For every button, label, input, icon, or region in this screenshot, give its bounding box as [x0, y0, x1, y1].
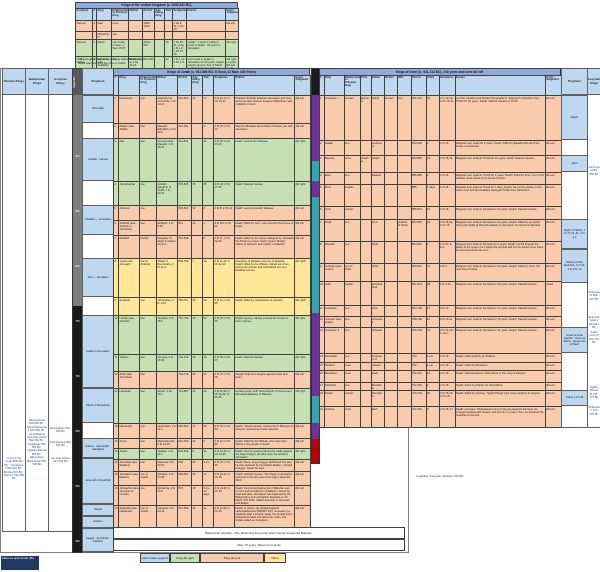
cell-king: Jehoash (aka Joash) — [324, 317, 344, 328]
cell-judgment: did evil — [545, 354, 561, 363]
cell-father: Ahijah — [371, 156, 384, 173]
cell-scriptures: 1 Ki 16 — [439, 173, 455, 185]
cell-judgment — [226, 32, 239, 40]
cell-judgment: did evil — [295, 96, 311, 124]
cell-years: 24 — [426, 156, 439, 173]
cell-rel: son — [140, 355, 157, 372]
cell-events: Death: shot by archers during the battle… — [235, 449, 295, 460]
babylonian-kings-header: Babylonian Kings — [26, 69, 48, 95]
cell-scriptures: 2 Ki 11; 2 Ch 22-23 — [214, 236, 235, 259]
cell-wife — [397, 173, 411, 185]
column-header-7: Period — [411, 76, 426, 96]
cell-scriptures: 2 Ki 8-9; 2 Ch 22 — [214, 221, 235, 236]
cell-scriptures: 2 Ki 23; 2 Ch 36 — [214, 460, 235, 472]
cell-wife — [397, 207, 411, 220]
cell-king: Josiah — [119, 449, 140, 460]
cell-mother: Azubah daughter of Shilhi, 1 Ki 22:42 — [157, 182, 178, 206]
cell-period: 852-841 — [411, 264, 426, 282]
cell-period: 885 — [411, 185, 426, 207]
cell-years: 22 — [426, 96, 439, 141]
cell-period: 732-716 — [178, 372, 192, 389]
cell-mother: Abijah, 2 Ch 29:1 — [157, 389, 178, 424]
timeline-tick: 800 — [73, 265, 82, 268]
cell-rel: captain — [344, 282, 360, 306]
judah-prophets-column: Prophets ShemaiahAzariah · HananiObadiah… — [82, 68, 114, 553]
cell-mother — [157, 206, 178, 221]
cell-mother: Daughter of Ahab & relative of Omri — [157, 236, 178, 259]
cell-mother — [384, 354, 397, 363]
cell-events: Death: killed by Jehu, who usurped the t… — [235, 221, 295, 236]
cell-father: Jeroboam — [371, 141, 384, 156]
cell-events: Death: Killed by Pekah, his chief office… — [455, 383, 545, 391]
cell-tribe — [360, 185, 371, 207]
timeline-segment — [73, 306, 82, 552]
king-row-elah: 4ElahsonBaasha886-88521 Ki 16Reigned ove… — [319, 173, 561, 185]
cell-father: Jehoash — [371, 328, 384, 354]
cell-king: Hezekiah — [119, 389, 140, 424]
cell-tribe — [360, 383, 371, 391]
timeline-segment — [73, 95, 82, 306]
cell-king: Jehu — [324, 282, 344, 306]
cell-king: Ahaz (aka Jehoahaz) — [119, 372, 140, 389]
cell-king: Jeroboam II — [324, 328, 344, 354]
cell-years: 6 mo — [426, 354, 439, 363]
cell-age: 25 — [192, 389, 203, 424]
cell-king: Hoshea — [324, 407, 344, 428]
cell-events: Reigned over Israel in Samaria for 22 ye… — [455, 220, 545, 242]
cell-events: Death: Killed by Menahem. — [455, 363, 545, 371]
cell-mother — [384, 328, 397, 354]
cell-scriptures: 2 Ki 15 — [439, 354, 455, 363]
cell-scriptures: 2 Ki 3 — [439, 264, 455, 282]
cell-wife — [397, 354, 411, 363]
prophet-cell: Jeremiah of Anathoth — [83, 458, 113, 504]
cell-scriptures: 2 Ki 8; 2 Ch 21 — [214, 206, 235, 221]
cell-judgment: did evil — [545, 383, 561, 391]
cell-mother — [384, 282, 397, 306]
assyrian-kings-left-column: Assyrian Kings Esarhaddon 681-669 BCAshu… — [48, 68, 73, 532]
king-row-hezekiah: 13HezekiahsonAbijah, 2 Ch 29:1716-687252… — [114, 389, 311, 424]
column-header-5: Age being King — [192, 76, 203, 96]
cell-period: 687-642 — [178, 424, 192, 439]
prophet-cell: Elijah of Tishbe, 1 Ki 17-19, 21; 2 Ki 1… — [562, 219, 587, 249]
king-row-josiah: 16JosiahsonJedidah, 2 Ki 22:1640-6098312… — [114, 449, 311, 460]
israel-prophets-column: Prophets AhijahJehuElijah of Tishbe, 1 K… — [561, 68, 588, 428]
cell-rel: none — [112, 21, 129, 32]
cell-king: Athaliah — [119, 236, 140, 259]
cell-period: 640-609 — [178, 449, 192, 460]
cell-father: Menahem — [371, 383, 384, 391]
cell-scriptures: 2 Ki 9-10 — [439, 282, 455, 306]
cell-judgment: did evil — [295, 236, 311, 259]
king-row-jehu: 10JehucaptainJehoshaphat841-814282 Ki 9-… — [319, 282, 561, 306]
prophet-cell: Oded, 2 Ch 28 — [562, 390, 587, 406]
foreign-king-entry: Nabopolassar 626-605 BC · Nebuchadnezzar… — [27, 419, 48, 466]
cell-judgment: did evil — [545, 141, 561, 156]
cell-king: Jehoahaz — [324, 306, 344, 317]
cell-years: 6 — [203, 236, 214, 259]
cell-judgment: did evil — [295, 221, 311, 236]
column-header-2: Relationship to Previous King — [344, 76, 360, 96]
cell-events: Warred (Micaiah) descendant of David; wa… — [235, 124, 295, 139]
king-row-pekah: 18PekahcaptainRemaliah740-732202 Ki 15-1… — [319, 391, 561, 407]
foreign-king-entry: Ashurbanipal 669-631 BC — [50, 441, 72, 448]
cell-age — [192, 236, 203, 259]
prophet-cell: Shemaiah — [83, 95, 113, 123]
cell-king: Amon — [119, 439, 140, 449]
cell-period: 886-885 — [411, 173, 426, 185]
cell-age — [192, 124, 203, 139]
king-row-ahaziah: 8AhaziahsonAhab853-85221 Ki 22; 2 Ki 1Re… — [319, 242, 561, 264]
cell-period: 814-798 — [411, 306, 426, 317]
cell-period: 910-909 — [411, 141, 426, 156]
cell-scriptures: 2 Ki 13-14 — [439, 317, 455, 328]
cell-mother — [384, 264, 397, 282]
cell-prophet: Samuel — [76, 21, 93, 32]
cell-tribe — [360, 391, 371, 407]
king-row-jotham: 11JothamsonJerusha, 2 Ki 15:33740-732251… — [114, 355, 311, 372]
king-row-saul: Samuel1Saulnone1050-10101 Sa 9-31; 1 Ch … — [76, 21, 239, 32]
cell-period: 911-870 — [178, 139, 192, 182]
cell-wife: Jezebel of Sidon — [397, 220, 411, 242]
cell-tribe — [360, 207, 371, 220]
prophet-cell: Obadiah — Jerusalem — [83, 205, 113, 235]
cell-mother: Jehoaddan, 2 Ki 14:2 — [157, 298, 178, 316]
cell-mother — [129, 21, 143, 32]
cell-period: 835-796 — [178, 259, 192, 298]
legend-king-did-right: King did right — [170, 553, 200, 563]
cell-rel: son — [140, 124, 157, 139]
cell-mother — [384, 391, 397, 407]
column-header-5: Period — [143, 9, 155, 21]
cell-king: Saul — [97, 21, 112, 32]
king-row-uzziah: 10Uzziah (aka Azariah)sonJecoliah, 2 Ki … — [114, 316, 311, 355]
note-line-2: David was king over the tribe of Judah. — [78, 62, 238, 66]
cell-rel: son — [344, 141, 360, 156]
cell-mother: Grandmother: Maacah, 1 Ki 15:10 — [157, 139, 178, 182]
cell-events: Reigned over Israel for 2 years. Death: … — [455, 141, 545, 156]
cell-father: Elah — [371, 407, 384, 428]
cell-events — [187, 32, 226, 40]
cell-rel: son — [140, 460, 157, 472]
cell-scriptures: 2 Ki 23-24; 2 Ch 36 — [214, 472, 235, 486]
prophet-cell: Ahijah — [562, 95, 587, 140]
cell-tribe — [360, 317, 371, 328]
cell-king: Ahab — [324, 220, 344, 242]
cell-years: 40 — [165, 40, 173, 57]
column-header-10: Events — [455, 76, 545, 96]
king-row-pekahiah: 17PekahiahsonMenahem742-74022 Ki 15Death… — [319, 383, 561, 391]
foreign-king-entry: Shamshi-Adad V 824-811 BC — [589, 316, 600, 330]
cell-king: Jotham — [119, 355, 140, 372]
israel-prophets-header: Prophets — [562, 69, 587, 95]
cell-wife — [397, 141, 411, 156]
cell-mother — [384, 242, 397, 264]
cell-wife — [397, 407, 411, 428]
cell-events: Death: Natural Causes. The Siege of Jeru… — [235, 472, 295, 486]
column-header-6: Age being King — [155, 9, 165, 21]
cell-period: 1050-1010 — [143, 21, 155, 32]
prophet-cell: Micah of Moresheth — [83, 388, 113, 423]
column-header-2: King — [97, 9, 112, 21]
cell-rel: son — [140, 439, 157, 449]
king-row-jehoahaz: 17Jehoahaz (aka Shallum)sonHamutal, 2 Ki… — [114, 460, 311, 472]
cell-events: Death: killed by his officials, who were… — [235, 439, 295, 449]
cell-age: 12 — [192, 424, 203, 439]
cell-period: 752 — [411, 363, 426, 371]
cell-scriptures: 2 Ki 11-12; 2 Ch 22-24 — [214, 259, 235, 298]
cell-king: Ahaziah — [324, 242, 344, 264]
cell-tribe — [360, 354, 371, 363]
cell-period: 609 — [178, 460, 192, 472]
column-header-6: Wife — [397, 76, 411, 96]
cell-years: 25 — [203, 182, 214, 206]
cell-scriptures: 2 Ki 13 — [439, 306, 455, 317]
cell-years: 3 — [203, 124, 214, 139]
babylonian-captivity-text: Babylonian captivity ~70y; Returning fro… — [205, 531, 312, 535]
cell-events: Sought help from Assyria against Israel … — [235, 372, 295, 389]
column-header-9: God's Judgment — [295, 76, 311, 96]
cell-king: Ahaziah (aka Azariah or Jehoahaz) — [119, 221, 140, 236]
cell-years: 55 — [203, 424, 214, 439]
cell-king: Zimri — [324, 185, 344, 207]
cell-judgment: did evil — [545, 220, 561, 242]
cell-period: 642-640 — [178, 439, 192, 449]
cell-mother: Naamah the Ammonite, 1 Ki 14:21 — [157, 96, 178, 124]
cell-events: Death: leprosy, having entered the templ… — [235, 316, 295, 355]
king-row-manasseh: 14ManassehsonHephzibah, 2 Ki 21:1687-642… — [114, 424, 311, 439]
cell-events: Death: Killed publicly by Shallum. — [455, 354, 545, 363]
cell-age — [155, 40, 165, 57]
king-row-ahab: 7AhabsonOmriJezebel of Sidon874-853221 K… — [319, 220, 561, 242]
king-row-ahaz: 12Ahaz (aka Jehoahaz)son732-71620162 Ki … — [114, 372, 311, 389]
cell-father: Jehoahaz — [371, 317, 384, 328]
foreign-king-entry: Ashurnasirpal II 883-859 BC — [589, 166, 600, 176]
timeline-segment — [312, 439, 319, 463]
cell-tribe — [360, 264, 371, 282]
column-header-11: God's Judgment — [545, 76, 561, 96]
cell-years: 29 — [203, 298, 214, 316]
king-row-rehoboam: 1RehoboamsonNaamah the Ammonite, 1 Ki 14… — [114, 96, 311, 124]
cell-judgment: did evil — [545, 371, 561, 383]
cell-events — [187, 21, 226, 32]
cell-judgment: did evil — [545, 407, 561, 428]
cell-years: 31 — [203, 449, 214, 460]
cell-rel: son — [140, 139, 157, 182]
cell-mother — [384, 207, 397, 220]
cell-period: 841 — [178, 221, 192, 236]
king-row-athaliah: 7AthaliahmotherDaughter of Ahab & relati… — [114, 236, 311, 259]
king-row-amon: 15AmonsonMeshullemeth, 2 Ki 21:19642-640… — [114, 439, 311, 449]
cell-scriptures: 2 Ki 15-16; 2 Ch 28 — [439, 391, 455, 407]
cell-king: Uzziah (aka Azariah) — [119, 316, 140, 355]
cell-wife — [397, 156, 411, 173]
cell-rel: son — [140, 424, 157, 439]
king-row-zimri: 5Zimricaptain8857 days1 Ki 16Reigned ove… — [319, 185, 561, 207]
cell-wife — [397, 306, 411, 317]
cell-scriptures: 1 Sa 16-31; 2 Sa; 1 Ki 1-2; 1 Ch 10-29 — [173, 40, 187, 57]
cell-mother: Meshullemeth, 2 Ki 21:19 — [157, 439, 178, 449]
cell-period: 597 — [178, 486, 192, 506]
cell-rel: son — [344, 317, 360, 328]
king-row-jehoshaphat: 4JehoshaphatsonAzubah daughter of Shilhi… — [114, 182, 311, 206]
king-row-jehoash: 12Jehoash (aka Joash)sonJehoahaz798-7821… — [319, 317, 561, 328]
cell-wife — [397, 328, 411, 354]
cell-rel: none — [344, 407, 360, 428]
cell-wife — [397, 264, 411, 282]
cell-years: 2 — [426, 141, 439, 156]
kings-of-judah-table: Kings of Judah (c. 931-586 BC; 8 Good, 1… — [113, 68, 310, 530]
cell-scriptures: 1 Ki 12-14; 2 Ch 10-12 — [214, 96, 235, 124]
cell-scriptures: 1 Sa 9-31; 1 Ch 10 — [173, 21, 187, 32]
cell-period: 740-732 — [411, 391, 426, 407]
cell-scriptures: 2 Ki 15; 2 Ch 26 — [214, 316, 235, 355]
cell-judgment: did right* — [295, 298, 311, 316]
cell-mother — [384, 306, 397, 317]
king-row-jehoram: 5Jehoramson845-8413282 Ki 8; 2 Ch 21Deat… — [114, 206, 311, 221]
kings-of-judah-and-israel-chart: Kings of the unified Kingdom (c. 1050-93… — [0, 0, 600, 572]
cell-rel: son — [140, 298, 157, 316]
cell-age: 16 — [192, 316, 203, 355]
cell-scriptures: 2 Ki 15; 2 Ch 27 — [214, 355, 235, 372]
cell-events: Death: unknown. Shalmaneser king of Assy… — [455, 407, 545, 428]
cell-scriptures: 1 Ki 22; 2 Ch 17-20 — [214, 182, 235, 206]
cell-years: 17 — [203, 96, 214, 124]
cell-king: Jehoram — [119, 206, 140, 221]
column-header-4: Mother — [129, 9, 143, 21]
cell-years: 16 — [203, 355, 214, 372]
cell-father: Jehoshaphat — [371, 282, 384, 306]
cell-period: 609-597 — [178, 472, 192, 486]
judah-title: Kings of Judah (c. 931-586 BC; 8 Good, 1… — [113, 68, 310, 75]
cell-judgment: did right — [295, 139, 311, 182]
cell-judgment: did right — [295, 182, 311, 206]
king-row-ishbosheth*: Ishbosheth*son — [76, 32, 239, 40]
cell-events: Death: severe foot disease. — [235, 139, 295, 182]
cell-period: 841-814 — [411, 282, 426, 306]
cell-judgment: did evil — [545, 156, 561, 173]
cell-rel: son — [344, 173, 360, 185]
cell-events: Reigned over Israel in Samaria for 41 ye… — [455, 328, 545, 354]
cell-rel: son of Ahab — [344, 264, 360, 282]
cell-events: Reigned over Israel in Tirzah for 7 days… — [455, 185, 545, 207]
cell-judgment: did evil — [545, 317, 561, 328]
cell-scriptures: 2 Ki 15 — [439, 371, 455, 383]
cell-age: 8 — [192, 449, 203, 460]
cell-judgment: did evil — [295, 472, 311, 486]
cell-mother — [384, 317, 397, 328]
cell-rel: captain — [344, 391, 360, 407]
column-header-6: Year — [203, 76, 214, 96]
timeline-tick: 600 — [73, 485, 82, 488]
cell-scriptures: 2 Ki 18-20; 2 Ch 29-32; Is 36-39 — [214, 389, 235, 424]
cell-mother: Zibiah of Beersheba, 2 Ki 12:1 — [157, 259, 178, 298]
cell-king: Menahem — [324, 371, 344, 383]
timeline-tick: 900 — [73, 155, 82, 158]
cell-tribe — [360, 282, 371, 306]
king-row-david: Samuel2Davidson-in-law of Saul, 1 Sam 18… — [76, 40, 239, 57]
cell-king: Pekahiah — [324, 383, 344, 391]
cell-period: 752-742 — [411, 371, 426, 383]
cell-years: 1 mo — [426, 363, 439, 371]
cell-events: Grandson of Athaliah and son of Ahaziah.… — [235, 259, 295, 298]
cell-scriptures: 2 Ki 14; 2 Ch 25 — [214, 298, 235, 316]
cell-father: Ahab — [371, 242, 384, 264]
cell-scriptures: 2 Ki 21; 2 Ch 33 — [214, 439, 235, 449]
cell-king: Jehoiakim (aka Eliakim) — [119, 472, 140, 486]
cell-events: Death: Natural Causes. Paid tribute to P… — [455, 371, 545, 383]
cell-events: Reigned over Israel in Tirzah for 2 year… — [455, 173, 545, 185]
legend-other: Other — [264, 553, 286, 563]
cell-years: 28 — [426, 282, 439, 306]
timeline-tick: 850 — [73, 210, 82, 213]
column-header-3: Tribe — [360, 76, 371, 96]
cell-mother — [157, 372, 178, 389]
cell-period: 767-740 — [178, 316, 192, 355]
prophet-cell: Isaiah of Jerusalem — [83, 315, 113, 388]
king-row-baasha: 3BaashanoneIssacharAhijah909-886241 Ki 1… — [319, 156, 561, 173]
cell-wife — [397, 383, 411, 391]
cell-wife — [397, 391, 411, 407]
cell-events: Reigned over Israel in Samaria for 12 ye… — [455, 207, 545, 220]
return-from-exile-row: After 70 years, Return from Exile — [113, 539, 405, 551]
cell-rel: son — [140, 486, 157, 506]
cell-events: Contemporary with Sennacherib of Assyria… — [235, 389, 295, 424]
cell-years — [165, 21, 173, 32]
cell-judgment: did evil — [545, 96, 561, 141]
timeline-tick: 700 — [73, 375, 82, 378]
babylonian-captivity-row: Babylonian captivity ~70y; Returning fro… — [113, 527, 405, 539]
cell-king: Pekah — [324, 391, 344, 407]
cell-judgment: mixed — [545, 282, 561, 306]
cell-king: Jehoiachin (aka Jeconiah or Coniah) — [119, 486, 140, 506]
cell-rel: son-in-law of Saul, 1 Sam 18:27 — [112, 40, 129, 57]
kings-of-israel-table: Kings of Israel (c. 931-722 BC); 208 yea… — [319, 68, 561, 428]
cell-age: 18 — [192, 486, 203, 506]
cell-events: Death: severe stomach disease. — [235, 206, 295, 221]
cell-scriptures: 1 Ki 15; 2 Ch 14-16 — [214, 139, 235, 182]
cell-rel: son — [140, 389, 157, 424]
cell-period: 732-722 — [411, 407, 426, 428]
cell-age: 35 — [192, 182, 203, 206]
cell-events: Death: natural causes. Imprisoned in Bab… — [235, 424, 295, 439]
cell-period: 742-740 — [411, 383, 426, 391]
cell-scriptures: 2 Ki 16; 2 Ch 28 — [214, 372, 235, 389]
cell-years: 41 — [203, 139, 214, 182]
prophet-cell: Azariah · Hanani — [83, 138, 113, 181]
cell-tribe: Ephraim — [360, 96, 371, 141]
cell-mother — [384, 371, 397, 383]
cell-events: Death: Killed by Hoshea. Tiglath-Pileser… — [455, 391, 545, 407]
cell-events: Reigned over Israel in Samaria for 28 ye… — [455, 282, 545, 306]
cell-rel: son — [344, 383, 360, 391]
column-header-4: Father — [371, 76, 384, 96]
cell-mother: Hephzibah, 2 Ki 21:1 — [157, 424, 178, 439]
cell-mother: Zeruah — [384, 96, 397, 141]
cell-judgment: did right — [226, 40, 239, 57]
cell-scriptures: 2 Ki 15, 17 — [439, 407, 455, 428]
king-row-omri: 6Omricaptain885-874121 Ki 16Reigned over… — [319, 207, 561, 220]
judah-prophets-header: Prophets — [83, 69, 113, 95]
unified-kingdom-notes: * The kingdom was divided during Ishbosh… — [78, 58, 238, 65]
cell-wife — [397, 363, 411, 371]
cell-wife: Ano — [397, 96, 411, 141]
cell-judgment: did evil — [545, 328, 561, 354]
timeline-tick: 650 — [73, 430, 82, 433]
color-code-legend: Color Code Legend: King did right King d… — [140, 553, 286, 563]
cell-years: 29 — [203, 389, 214, 424]
cell-rel: captain — [344, 185, 360, 207]
